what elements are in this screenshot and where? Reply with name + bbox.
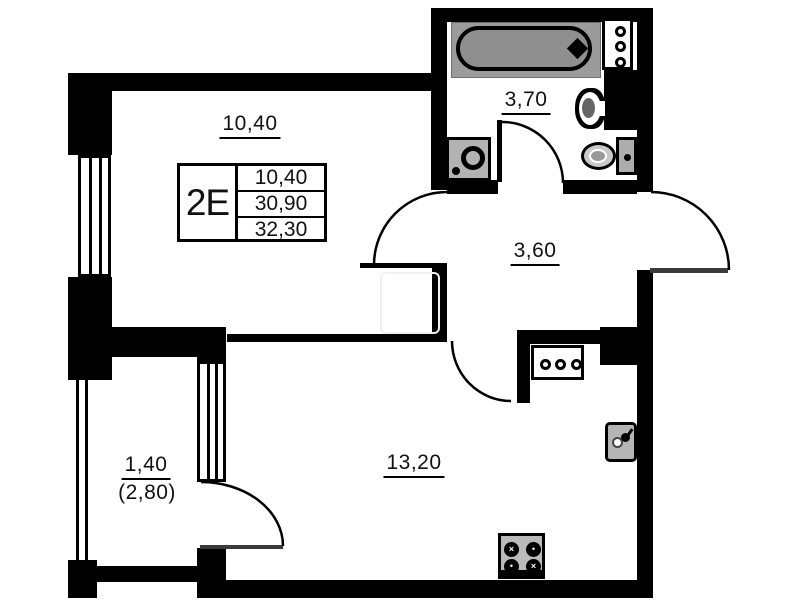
unit-area-rows: 10,40 30,90 32,30 (238, 166, 324, 239)
toilet-tank (616, 137, 637, 175)
unit-area-row: 32,30 (238, 216, 324, 242)
vent-hole (540, 359, 551, 370)
balcony-area-label: 1,40 (122, 453, 171, 480)
washer-knob (452, 167, 460, 175)
vent-hole (615, 57, 626, 68)
burner-icon (504, 559, 519, 574)
wall (604, 70, 637, 130)
washer-door (461, 146, 485, 170)
floor-plan: 10,40 2E 10,40 30,90 32,30 3,70 3,60 13,… (0, 0, 799, 600)
entrance-door-leaf (650, 268, 728, 273)
wall (68, 73, 447, 91)
wall (197, 327, 226, 362)
kitchen-sink-icon (605, 422, 637, 462)
vent-hole (615, 26, 626, 37)
sink-bowl (582, 98, 595, 118)
wall (431, 8, 447, 190)
window-pane-line (207, 364, 210, 479)
wall (68, 560, 97, 598)
wall (112, 327, 197, 357)
stove-icon (498, 533, 545, 579)
faint-watermark (380, 272, 440, 334)
bathroom-door-leaf (497, 120, 502, 182)
unit-type-label: 2E (180, 166, 238, 239)
entrance-door-arc (651, 192, 729, 270)
window-pane-line (89, 158, 92, 274)
balcony-glazing-line (85, 380, 88, 562)
wall (637, 270, 653, 598)
bedroom-door-arc (374, 192, 447, 265)
burner-icon (526, 542, 541, 557)
wall (68, 75, 112, 155)
vent-grille-icon (602, 18, 633, 70)
wall (637, 8, 653, 192)
wall (197, 580, 653, 598)
wall (68, 277, 112, 380)
balcony-glazing-line (76, 380, 79, 562)
wall (563, 180, 637, 194)
balcony-total-area-label: (2,80) (118, 481, 176, 505)
bedroom-area-label: 10,40 (219, 112, 280, 139)
sink-mount (596, 101, 605, 116)
living-kitchen-area-label: 13,20 (383, 451, 444, 478)
washing-machine-icon (446, 137, 491, 181)
burner-icon (504, 542, 519, 557)
wall (600, 327, 637, 365)
bathroom-area-label: 3,70 (502, 88, 551, 115)
balcony-window-icon (197, 361, 226, 482)
wall (86, 566, 197, 582)
hallway-area-label: 3,60 (511, 239, 560, 266)
bathroom-sink-icon (575, 88, 605, 129)
vent-hole (555, 359, 566, 370)
bathroom-door-arc (502, 122, 563, 183)
bedroom-window-icon (78, 155, 111, 277)
wall (447, 180, 498, 194)
unit-area-row: 30,90 (238, 190, 324, 216)
vent-hole (571, 359, 582, 370)
unit-info-box: 2E 10,40 30,90 32,30 (177, 163, 327, 242)
toilet-icon (581, 142, 616, 170)
window-pane-line (215, 364, 218, 479)
vent-grille-icon (531, 345, 584, 380)
wall (517, 330, 530, 403)
bedroom-door-leaf (360, 263, 447, 268)
burner-icon (526, 559, 541, 574)
balcony-door-arc (201, 482, 283, 546)
window-pane-line (99, 158, 102, 274)
toilet-flush-button (624, 154, 631, 161)
living-room-door-arc (452, 341, 511, 401)
balcony-door-leaf (200, 545, 283, 549)
wall (227, 334, 447, 342)
vent-hole (615, 41, 626, 52)
toilet-seat (589, 149, 607, 163)
unit-area-row: 10,40 (238, 166, 324, 190)
wall (197, 548, 226, 582)
